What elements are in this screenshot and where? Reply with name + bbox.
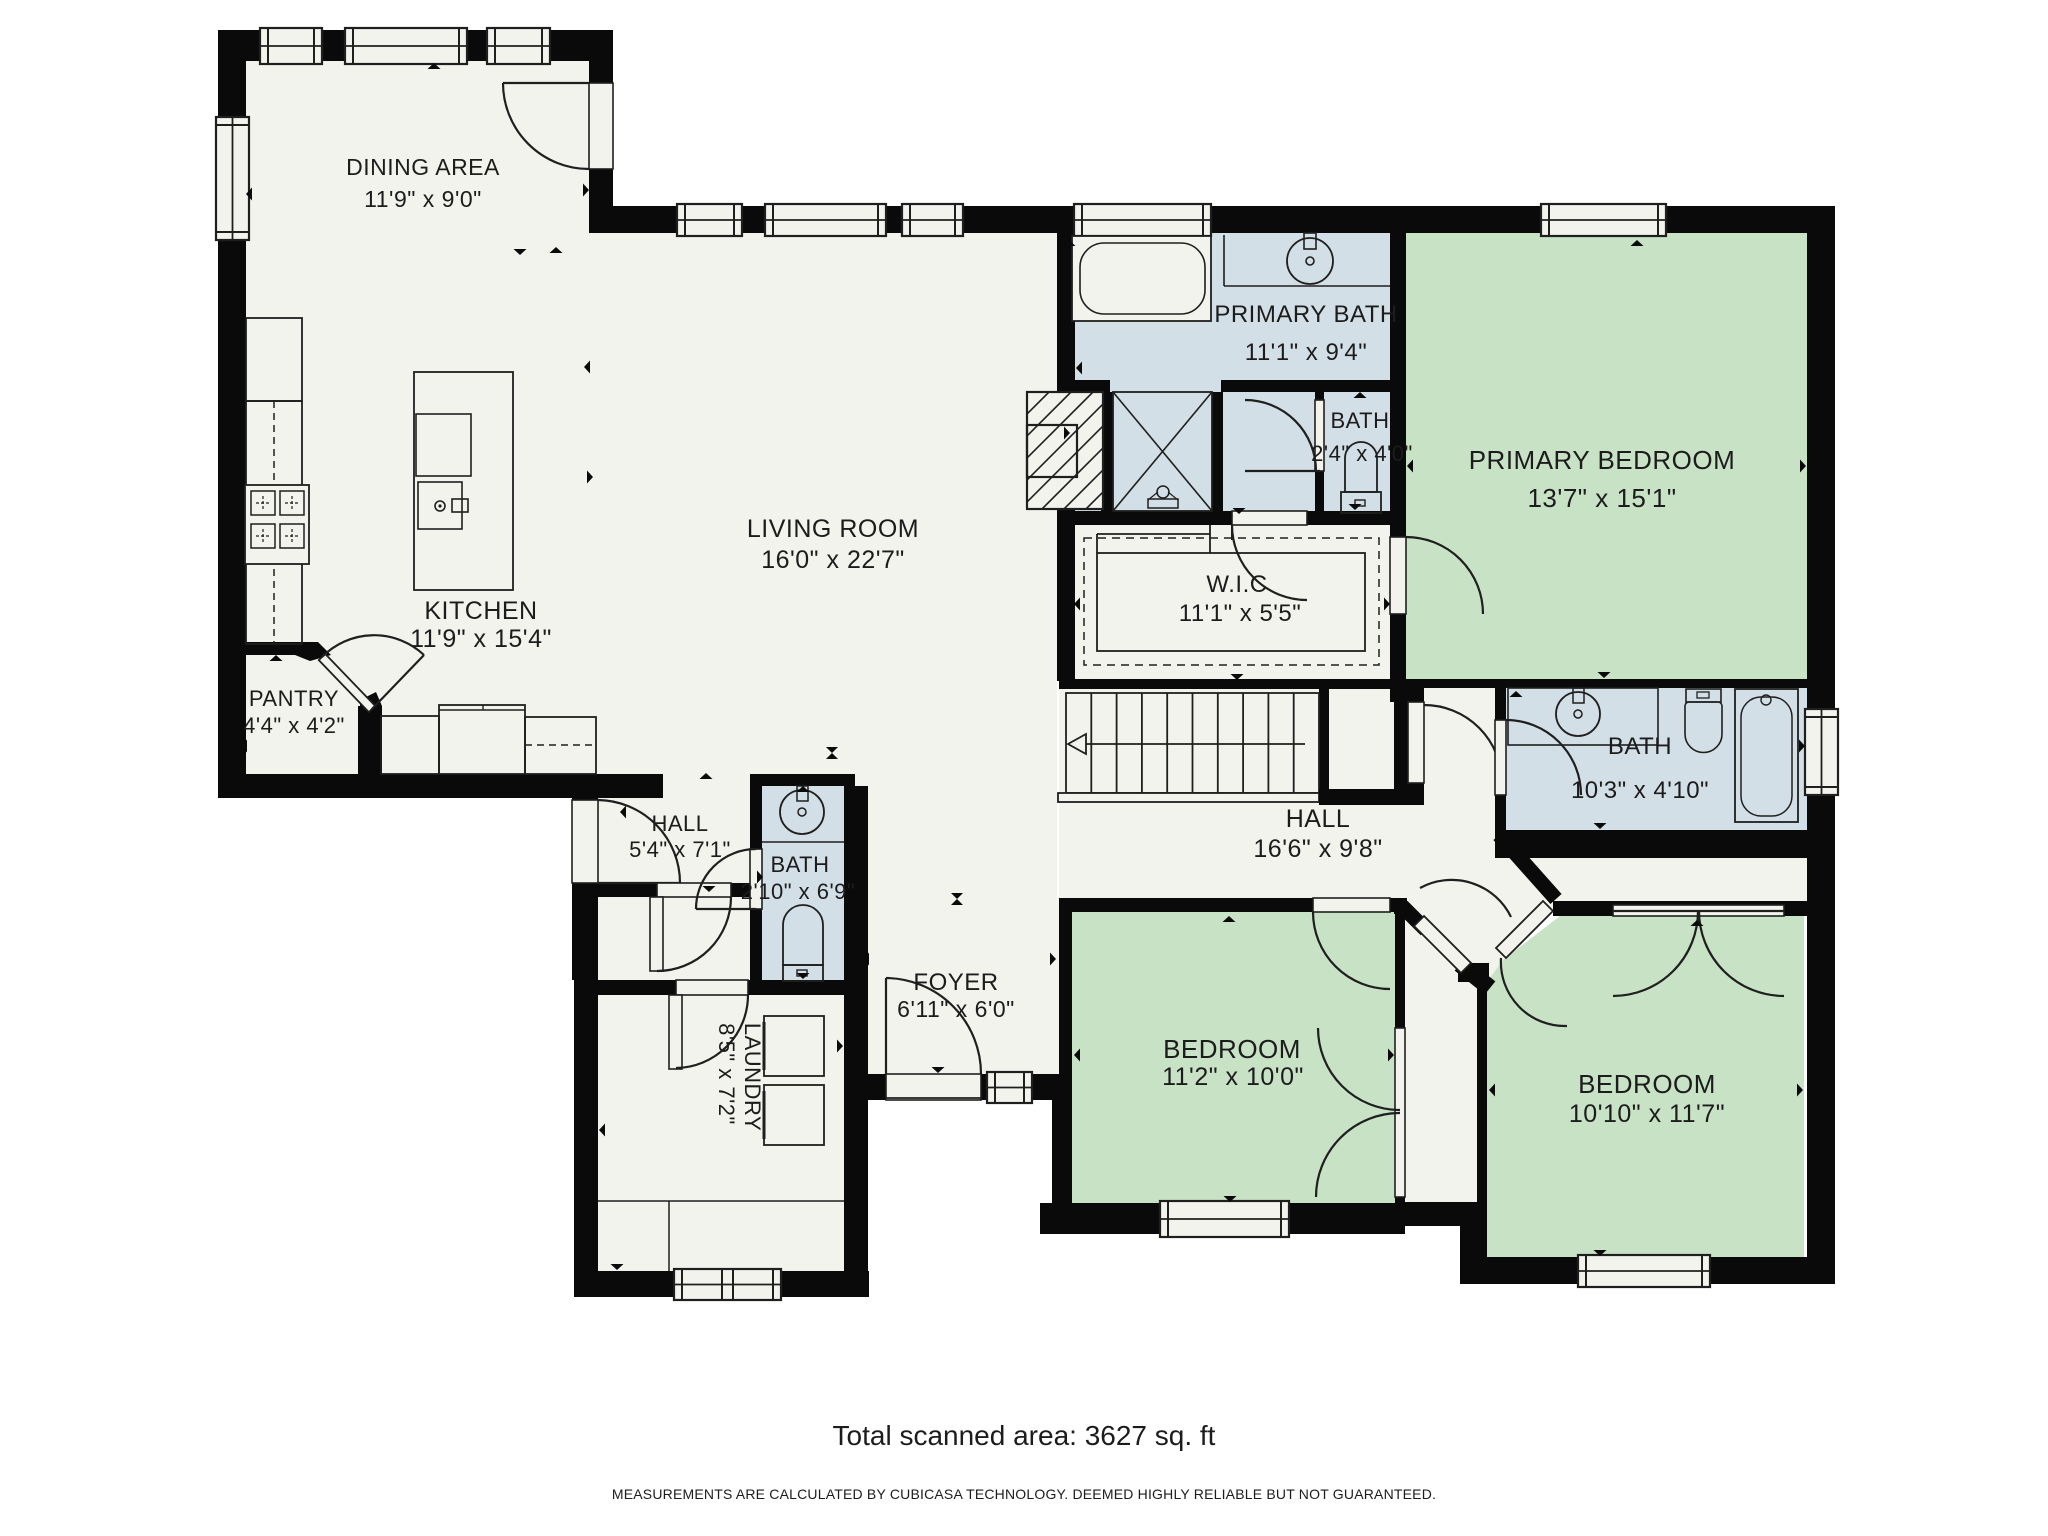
svg-text:W.I.C: W.I.C — [1206, 571, 1267, 598]
svg-text:PRIMARY BEDROOM: PRIMARY BEDROOM — [1469, 445, 1736, 475]
svg-text:BEDROOM: BEDROOM — [1163, 1034, 1301, 1064]
svg-text:BATH: BATH — [1608, 733, 1672, 760]
svg-text:13'7" x 15'1": 13'7" x 15'1" — [1527, 483, 1676, 513]
svg-text:LIVING ROOM: LIVING ROOM — [747, 515, 919, 543]
svg-text:4'4" x 4'2": 4'4" x 4'2" — [243, 713, 345, 738]
svg-text:11'9" x 9'0": 11'9" x 9'0" — [364, 186, 482, 212]
svg-text:KITCHEN: KITCHEN — [424, 597, 537, 625]
svg-text:11'2" x 10'0": 11'2" x 10'0" — [1162, 1063, 1304, 1091]
svg-text:BATH: BATH — [770, 852, 829, 877]
svg-text:Total scanned area: 3627 sq. f: Total scanned area: 3627 sq. ft — [833, 1420, 1216, 1451]
svg-text:HALL: HALL — [1286, 805, 1351, 833]
svg-text:2'10" x 6'9": 2'10" x 6'9" — [741, 879, 855, 904]
svg-text:HALL: HALL — [651, 811, 708, 836]
svg-text:MEASUREMENTS ARE CALCULATED BY: MEASUREMENTS ARE CALCULATED BY CUBICASA … — [612, 1486, 1436, 1502]
svg-text:2'4" x 4'0": 2'4" x 4'0" — [1311, 441, 1413, 466]
svg-text:5'4" x 7'1": 5'4" x 7'1" — [629, 837, 731, 862]
svg-text:6'11" x 6'0": 6'11" x 6'0" — [897, 996, 1015, 1022]
svg-text:8'5" x 7'2": 8'5" x 7'2" — [714, 1023, 739, 1125]
svg-text:BATH: BATH — [1330, 408, 1389, 433]
svg-text:16'0" x 22'7": 16'0" x 22'7" — [761, 546, 905, 574]
svg-text:11'1" x 9'4": 11'1" x 9'4" — [1245, 339, 1368, 366]
svg-text:DINING AREA: DINING AREA — [346, 154, 500, 180]
svg-text:PANTRY: PANTRY — [249, 686, 339, 711]
svg-text:BEDROOM: BEDROOM — [1578, 1069, 1716, 1099]
svg-text:16'6" x 9'8": 16'6" x 9'8" — [1253, 835, 1382, 863]
svg-text:11'9" x 15'4": 11'9" x 15'4" — [410, 625, 552, 653]
svg-text:FOYER: FOYER — [913, 969, 998, 996]
svg-text:11'1" x 5'5": 11'1" x 5'5" — [1179, 600, 1302, 627]
svg-text:10'10" x 11'7": 10'10" x 11'7" — [1569, 1100, 1725, 1128]
svg-text:PRIMARY BATH: PRIMARY BATH — [1214, 301, 1397, 328]
svg-text:10'3" x 4'10": 10'3" x 4'10" — [1571, 777, 1709, 804]
svg-text:LAUNDRY: LAUNDRY — [740, 1023, 765, 1131]
